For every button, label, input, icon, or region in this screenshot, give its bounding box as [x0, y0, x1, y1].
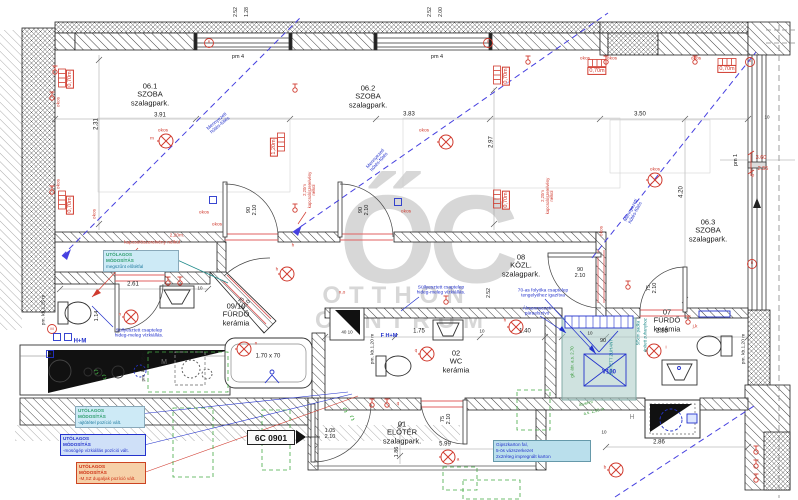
note-body: megszűnt előtétfal: [106, 264, 143, 269]
floorplan-page: ŐC OTTHON CENTRUM: [0, 0, 798, 500]
modification-note-box: UTÓLAGOS MÓDOSÍTÁS-ajtótétel pozíció vál…: [75, 406, 145, 428]
sink: [662, 360, 697, 385]
toilet: [697, 336, 732, 356]
note-title: UTÓLAGOS MÓDOSÍTÁS: [78, 408, 142, 420]
note-title: UTÓLAGOS MÓDOSÍTÁS: [79, 464, 143, 476]
toilet: [376, 356, 411, 376]
note-title: UTÓLAGOS MÓDOSÍTÁS: [106, 252, 176, 264]
sink: [160, 286, 194, 308]
note-body: -ajtótétel pozíció vált.: [78, 420, 121, 425]
note-body: Gipszkarton fal, 5-ös vázszerkezet 2x2ré…: [496, 442, 551, 459]
modification-note-box: Gipszkarton fal, 5-ös vázszerkezet 2x2ré…: [493, 440, 591, 462]
windows: [194, 33, 766, 310]
modification-note-box: UTÓLAGOS MÓDOSÍTÁSmegszűnt előtétfal: [103, 250, 179, 272]
modification-note-box: UTÓLAGOS MÓDOSÍTÁS-mosógép vízkiállás po…: [60, 434, 146, 456]
built-shower: [562, 316, 636, 400]
note-body: -mosógép vízkiállás pozíció vált.: [63, 448, 129, 453]
modification-note-box: UTÓLAGOS MÓDOSÍTÁS-M,SZ dugaljak pozíció…: [76, 462, 146, 484]
toilet: [58, 302, 91, 324]
note-title: UTÓLAGOS MÓDOSÍTÁS: [63, 436, 143, 448]
note-body: -M,SZ dugaljak pozíció vált.: [79, 476, 135, 481]
sheet-code: 6C 0901: [247, 430, 295, 445]
